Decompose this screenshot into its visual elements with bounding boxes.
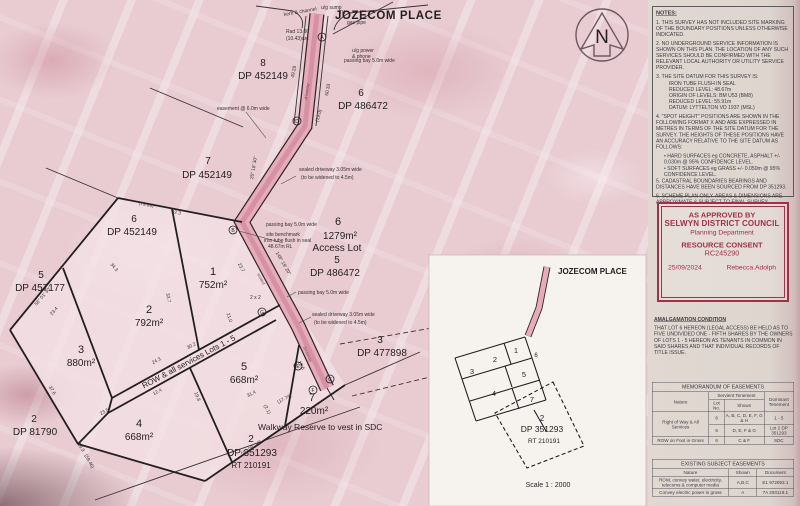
dim: 26° 18' 30" xyxy=(249,156,259,180)
amalgamation-title: AMALGAMATION CONDITION xyxy=(654,317,794,323)
existing-document: E1 972093.1 xyxy=(757,476,794,489)
stamp-date: 25/09/2024 xyxy=(668,264,702,272)
stamp-approved-by: AS APPROVED BY xyxy=(662,211,782,220)
inset-lot-2: 2 xyxy=(493,355,497,364)
memo-shown: D, E, F & G xyxy=(724,424,764,437)
mark-f: F xyxy=(311,388,314,394)
inset-lot-1: 1 xyxy=(514,346,518,355)
memo-col-dominant: Dominant Tenement xyxy=(764,392,794,412)
table-row: ROW, convey water, electricity, telecoms… xyxy=(652,476,794,489)
dim: 49.28 xyxy=(290,65,298,78)
note-5: 5. CADASTRAL BOUNDARIES BEARINGS AND DIS… xyxy=(656,178,792,190)
parcel-486472a-dp: DP 486472 xyxy=(338,101,388,112)
ann-sealed2b: (to be widened to 4.5m) xyxy=(314,320,367,326)
existing-title: EXISTING SUBJECT EASEMENTS xyxy=(652,459,794,469)
north-arrow-icon: N xyxy=(576,9,628,61)
ann-passing-2: passing bay 5.0m wide xyxy=(266,222,317,228)
lot-5-area: 668m² xyxy=(230,375,259,386)
inset-lot-4: 4 xyxy=(492,389,496,398)
parcel-5-number: 5 xyxy=(38,270,44,281)
memo-dominant: 1 - 5 xyxy=(764,412,794,425)
memo-col-lotno: Lot No. xyxy=(709,399,725,412)
parcel-351293-number: 2 xyxy=(248,434,254,445)
table-row: Convey electric power in gross A 7A 2931… xyxy=(652,489,794,497)
amalgamation-text: THAT LOT 6 HEREON (LEGAL ACCESS) BE HELD… xyxy=(654,326,794,357)
stamp-inner-border: AS APPROVED BY SELWYN DISTRICT COUNCIL P… xyxy=(661,206,785,298)
dim: (19.0) xyxy=(315,109,324,123)
ann-passing-1: passing bay 5.0m wide xyxy=(344,58,395,64)
existing-col-shown: Shown xyxy=(729,469,757,477)
ann-bench3: 48.67m RL xyxy=(268,244,293,250)
lot-2-area: 792m² xyxy=(135,318,164,329)
parcel-5-dp: DP 457177 xyxy=(15,283,65,294)
memo-col-servient: Servient Tenement xyxy=(709,392,764,400)
memo-lot: 6 xyxy=(709,437,725,445)
memo-title: MEMORANDUM OF EASEMENTS xyxy=(652,382,794,392)
parcel-6-dp: DP 452149 xyxy=(107,227,157,238)
note-3: 3. THE SITE DATUM FOR THIS SURVEY IS: xyxy=(656,74,792,80)
ann-tk: TK xyxy=(339,10,346,16)
memo-dominant: Lot 2 DP 351293 xyxy=(764,424,794,437)
memo-col-nature: Nature xyxy=(652,392,709,412)
lot-1-area: 752m² xyxy=(199,280,228,291)
stamp-consent: RESOURCE CONSENT xyxy=(662,241,782,250)
parcel-81790-number: 2 xyxy=(31,414,37,425)
note-4-bullet-2: • SOFT SURFACES eg GRASS +/- 0.050m @ 95… xyxy=(664,166,792,178)
memo-lot: 6 xyxy=(709,412,725,425)
inset-scale: Scale 1 : 2000 xyxy=(526,482,571,489)
memo-lot: 6 xyxy=(709,424,725,437)
dashed-boundary-lines xyxy=(340,328,432,396)
memo-col-shown: Shown xyxy=(724,399,764,412)
existing-nature: Convey electric power in gross xyxy=(652,489,728,497)
stamp-department: Planning Department xyxy=(662,229,782,237)
dim: 60.33 xyxy=(324,83,332,96)
mark-a: A xyxy=(320,35,324,41)
existing-col-document: Document xyxy=(757,469,794,477)
parcel-8-number: 8 xyxy=(260,58,266,69)
lot-3-number: 3 xyxy=(78,344,84,356)
ann-easement: easement @ 6.0m wide xyxy=(217,106,270,112)
access-lot-label: Access Lot xyxy=(313,243,362,254)
parcel-486472a-number: 6 xyxy=(358,88,364,99)
parcel-8-dp: DP 452149 xyxy=(238,71,288,82)
ann-sealed2a: sealed driveway 3.05m wide xyxy=(312,312,375,318)
inset-lot-3: 3 xyxy=(470,367,474,376)
inset-parcel-dp: DP 351293 xyxy=(521,424,564,434)
parcel-7-number: 7 xyxy=(205,156,211,167)
notes-box: NOTES: 1. THIS SURVEY HAS NOT INCLUDED S… xyxy=(652,6,794,197)
ann-rad1: Rad 13.00 xyxy=(286,29,309,35)
walkway-reserve-note: Walkway Reserve to vest in SDC xyxy=(258,422,382,432)
inset-lot-7: 7 xyxy=(530,395,534,404)
table-row: Right of Way & All Services 6 A, B, C, D… xyxy=(652,412,794,425)
inset-street-title: JOZECOM PLACE xyxy=(558,267,628,276)
parcel-81790-dp: DP 81790 xyxy=(13,427,58,438)
access-lot-number: 6 xyxy=(335,216,341,228)
existing-shown: A,B,C xyxy=(729,476,757,489)
parcel-7-dp: DP 452149 xyxy=(182,170,232,181)
existing-shown: A xyxy=(729,489,757,497)
memo-nature: ROW on Foot in Gross xyxy=(652,437,709,445)
existing-document: 7A 293119.1 xyxy=(757,489,794,497)
lot-5-number: 5 xyxy=(241,361,247,373)
mark-d: D xyxy=(295,119,299,125)
north-letter: N xyxy=(595,27,609,48)
council-approval-stamp: AS APPROVED BY SELWYN DISTRICT COUNCIL P… xyxy=(657,202,789,302)
parcel-477898-dp: DP 477898 xyxy=(357,348,407,359)
note-1: 1. THIS SURVEY HAS NOT INCLUDED SITE MAR… xyxy=(656,20,792,38)
lot-4-number: 4 xyxy=(136,418,142,430)
ann-grid: 2 x 2 xyxy=(250,295,261,301)
inset-lot-5: 5 xyxy=(522,370,526,379)
access-lot-area: 1279m² xyxy=(323,231,358,242)
existing-nature: ROW, convey water, electricity, telecoms… xyxy=(652,476,728,489)
inset-diagram: JOZECOM PLACE 1 2 3 5 4 7 6 2 DP 351293 … xyxy=(429,255,646,506)
parcel-351293-rt: RT 210191 xyxy=(231,461,271,470)
lot-7-area: 220m² xyxy=(300,406,329,417)
mark-c: C xyxy=(328,377,332,383)
table-row: ROW on Foot in Gross 6 C & F SDC xyxy=(652,437,794,445)
parcel-6-number: 6 xyxy=(131,214,137,225)
notes-title: NOTES: xyxy=(656,10,792,16)
ann-sealed1b: (to be widened to 4.5m) xyxy=(301,175,354,181)
stamp-signature: Rebecca.Adolph xyxy=(726,264,776,272)
memo-nature: Right of Way & All Services xyxy=(652,412,709,437)
stamp-consent-number: RC245290 xyxy=(662,250,782,258)
title-block-panel: NOTES: 1. THIS SURVEY HAS NOT INCLUDED S… xyxy=(648,0,800,506)
lot-3-area: 880m² xyxy=(67,358,96,369)
lot-1-number: 1 xyxy=(210,266,216,278)
ann-sealed1a: sealed driveway 3.05m wide xyxy=(299,167,362,173)
datum-block: IRON TUBE FLUSH IN SEAL REDUCED LEVEL: 4… xyxy=(669,81,792,111)
memorandum-of-easements-table: MEMORANDUM OF EASEMENTS Nature Servient … xyxy=(652,382,794,445)
mark-g: G xyxy=(260,310,264,316)
lot-4-area: 668m² xyxy=(125,432,154,443)
note-4-bullet-1: • HARD SURFACES eg CONCRETE, ASPHALT +/-… xyxy=(664,153,792,165)
ann-passing-3: passing bay 5.0m wide xyxy=(298,290,349,296)
ann-rad2: (10.43)arc xyxy=(286,36,309,42)
existing-easements-wrap: EXISTING SUBJECT EASEMENTS Nature Shown … xyxy=(652,459,796,506)
memo-shown: A, B, C, D, E, F, G & H xyxy=(724,412,764,425)
scan-shadow xyxy=(0,446,140,506)
lot-2-number: 2 xyxy=(146,304,152,316)
inset-parcel-number: 2 xyxy=(540,414,545,423)
parcel-486472b-dp: DP 486472 xyxy=(310,268,360,279)
existing-col-nature: Nature xyxy=(652,469,728,477)
memo-shown: C & F xyxy=(724,437,764,445)
datum-line: DATUM: LYTTELTON VD 1937 (MSL) xyxy=(669,105,792,111)
scanned-survey-plan: JOZECOM PLACE 1 752m² 2 792m² 3 880m² 4 … xyxy=(0,0,800,506)
memo-dominant: SDC xyxy=(764,437,794,445)
existing-subject-easements-table: EXISTING SUBJECT EASEMENTS Nature Shown … xyxy=(652,459,794,497)
inset-parcel-rt: RT 210191 xyxy=(528,438,560,445)
note-4: 4. "SPOT HEIGHT" POSITIONS ARE SHOWN IN … xyxy=(656,114,792,150)
ann-gas: gas pipe xyxy=(347,20,366,26)
parcel-486472b-number: 5 xyxy=(334,255,340,266)
parcel-477898-number: 3 xyxy=(377,335,383,346)
stamp-council: SELWYN DISTRICT COUNCIL xyxy=(662,220,782,229)
note-2: 2. NO UNDERGROUND SERVICE INFORMATION IS… xyxy=(656,41,792,71)
